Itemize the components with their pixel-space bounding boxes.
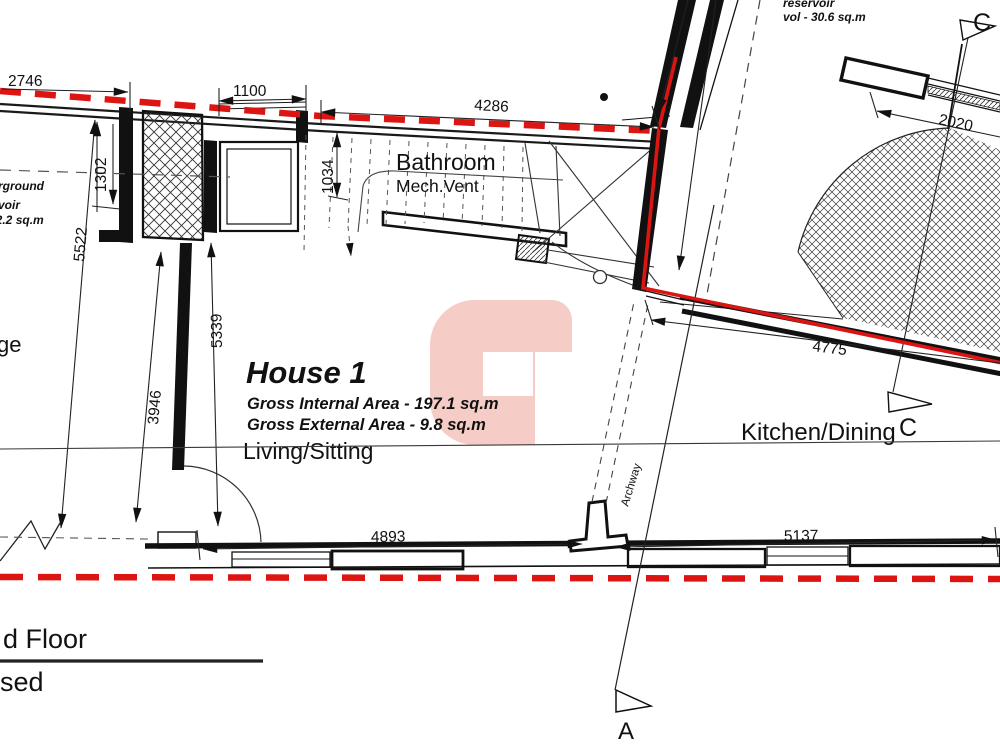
dim-label-5339: 5339	[208, 313, 226, 348]
dimension-5522	[61, 120, 95, 528]
door-swing-arc	[184, 466, 261, 542]
note-reservoir-left-1: rground	[0, 179, 45, 193]
dim-label-4893: 4893	[371, 528, 406, 546]
section-label-c-bottom: C	[899, 414, 917, 442]
dim-label-4775: 4775	[812, 338, 848, 359]
archway-label: Archway	[619, 462, 643, 508]
section-marker-a	[616, 690, 651, 712]
note-reservoir-left-2: voir	[0, 198, 21, 212]
dim-label-4286: 4286	[474, 97, 509, 116]
red-dashed-bottom-boundary	[0, 577, 1000, 579]
room-label-bathroom: Bathroom	[396, 149, 496, 175]
note-reservoir-left-3: 92.2 sq.m	[0, 213, 44, 227]
room-label-living: Living/Sitting	[243, 438, 373, 464]
house-title: House 1	[246, 355, 367, 390]
section-line-a	[615, 205, 714, 712]
stair-newel-post	[594, 271, 607, 284]
house-internal-area: Gross Internal Area - 197.1 sq.m	[247, 395, 499, 413]
titleblock-floor-label: d Floor	[3, 624, 87, 654]
dim-label-5137: 5137	[784, 527, 819, 545]
living-west-wall	[172, 243, 261, 542]
dim-label-5522: 5522	[71, 227, 91, 263]
dim-label-1302: 1302	[93, 158, 110, 192]
dim-label-2746: 2746	[8, 73, 42, 90]
party-wall	[622, 0, 760, 300]
titleblock-proposed-label: sed	[0, 667, 44, 697]
stair-newel-wall	[516, 235, 549, 263]
floor-plan-canvas: 2746 1100 4286 1302 1034 5522 5339 3946 …	[0, 0, 1000, 750]
room-label-garage-fragment: ge	[0, 332, 21, 357]
northeast-wall-fragment	[841, 44, 1000, 129]
section-label-c-top: C	[973, 9, 991, 37]
room-label-mech-vent: Mech.Vent	[396, 176, 479, 196]
bathroom-wall	[383, 212, 566, 263]
dim-label-1034: 1034	[320, 159, 337, 194]
dashed-floor-line	[0, 537, 148, 539]
dim-label-1100: 1100	[233, 83, 267, 100]
dimension-3946	[136, 252, 161, 522]
survey-dot	[600, 93, 608, 101]
note-reservoir-top-1: reservoir	[783, 0, 836, 10]
floor-plan-drawing: 2746 1100 4286 1302 1034 5522 5339 3946 …	[0, 0, 1000, 750]
window	[232, 552, 330, 567]
note-reservoir-top-2: vol - 30.6 sq.m	[783, 10, 866, 24]
rooflight-shaft	[220, 142, 298, 231]
break-line	[0, 521, 60, 561]
dim-label-3946: 3946	[145, 390, 165, 426]
dimension-5339	[211, 243, 218, 526]
section-marker-c-bottom	[888, 392, 932, 412]
house-external-area: Gross External Area - 9.8 sq.m	[247, 416, 486, 434]
section-label-a: A	[618, 718, 634, 745]
